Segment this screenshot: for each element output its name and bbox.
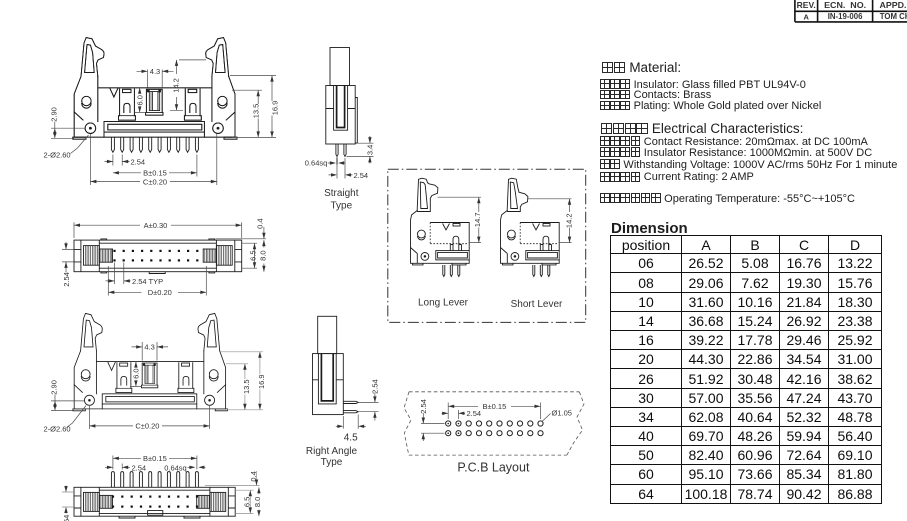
svg-text:2.54: 2.54: [419, 399, 428, 414]
svg-text:4.3: 4.3: [144, 343, 154, 352]
svg-text:APPD.: APPD.: [880, 1, 907, 10]
svg-text:C±0.20: C±0.20: [135, 422, 159, 431]
svg-text:ECN. NO.: ECN. NO.: [824, 1, 866, 10]
svg-text:4.3: 4.3: [150, 67, 160, 76]
svg-text:Straight: Straight: [324, 188, 359, 199]
svg-text:16.9: 16.9: [257, 374, 266, 389]
svg-text:B±0.15: B±0.15: [143, 169, 167, 178]
svg-text:0.4: 0.4: [255, 218, 264, 228]
svg-text:Long Lever: Long Lever: [418, 297, 469, 308]
svg-text:D±0.20: D±0.20: [148, 288, 172, 297]
svg-text:14.2: 14.2: [171, 78, 180, 93]
svg-text:2.54: 2.54: [131, 158, 146, 167]
svg-text:Right Angle: Right Angle: [306, 446, 358, 457]
svg-text:13.5: 13.5: [242, 379, 251, 394]
svg-text:IN-19-006: IN-19-006: [828, 12, 863, 21]
svg-text:Ø1.05: Ø1.05: [552, 408, 572, 417]
svg-text:2-Ø2.60: 2-Ø2.60: [44, 425, 71, 434]
svg-text:13.5: 13.5: [251, 104, 260, 119]
svg-text:2-Ø2.60: 2-Ø2.60: [44, 151, 71, 160]
svg-text:6.0: 6.0: [131, 368, 140, 378]
svg-text:14.7: 14.7: [473, 212, 482, 227]
svg-text:REV.: REV.: [797, 1, 816, 10]
svg-text:P.C.B Layout: P.C.B Layout: [457, 460, 530, 474]
svg-text:Short Lever: Short Lever: [511, 299, 563, 310]
svg-text:Type: Type: [330, 201, 352, 212]
svg-text:2.54: 2.54: [62, 515, 71, 521]
svg-text:8.0: 8.0: [253, 497, 262, 507]
svg-text:16.9: 16.9: [270, 101, 279, 116]
svg-text:B±0.15: B±0.15: [143, 454, 167, 463]
svg-text:4.5: 4.5: [344, 432, 358, 443]
svg-text:Type: Type: [321, 457, 343, 468]
svg-text:C±0.20: C±0.20: [143, 177, 167, 186]
svg-text:0.64sq: 0.64sq: [164, 463, 187, 472]
svg-text:2.54: 2.54: [62, 272, 71, 287]
svg-text:A: A: [803, 12, 809, 21]
svg-text:6.5: 6.5: [243, 497, 252, 507]
svg-text:0.4: 0.4: [249, 471, 258, 481]
svg-text:2.54: 2.54: [370, 379, 379, 394]
svg-text:B±0.15: B±0.15: [483, 402, 507, 411]
svg-text:3.4: 3.4: [365, 145, 374, 155]
svg-text:A±0.30: A±0.30: [144, 221, 168, 230]
svg-text:6.0: 6.0: [135, 95, 144, 105]
svg-text:2.90: 2.90: [50, 107, 59, 122]
svg-text:2.90: 2.90: [50, 380, 59, 395]
svg-text:TOM CHEN: TOM CHEN: [880, 12, 907, 21]
svg-text:2.54: 2.54: [132, 463, 147, 472]
svg-text:14.2: 14.2: [565, 213, 574, 228]
svg-text:2.54: 2.54: [354, 171, 369, 180]
svg-text:2.54: 2.54: [467, 409, 482, 418]
svg-text:0.64sq: 0.64sq: [305, 159, 328, 168]
svg-text:8.0: 8.0: [259, 250, 268, 260]
svg-text:6.5: 6.5: [249, 250, 258, 260]
svg-text:2.54 TYP: 2.54 TYP: [132, 277, 163, 286]
